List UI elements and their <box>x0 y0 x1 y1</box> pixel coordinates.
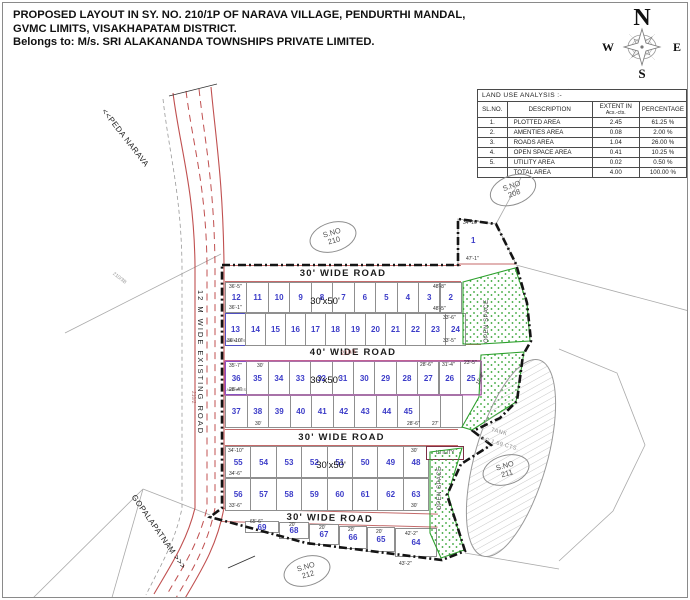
road-band: 30' WIDE ROAD <box>225 429 458 446</box>
road-band: 30' WIDE ROAD <box>225 265 461 282</box>
plot-number: 16 <box>286 314 305 345</box>
plot-16: 16 <box>285 313 306 346</box>
plot-15: 15 <box>265 313 286 346</box>
land-use-cell: AMENTIES AREA <box>507 128 592 138</box>
plot-number: 39 <box>269 396 290 427</box>
plot-42: 42 <box>333 395 356 428</box>
tank-area-label: AC 1.69 CTS. <box>480 436 519 452</box>
plot-number: 14 <box>246 314 265 345</box>
plot-number: 33 <box>290 362 310 394</box>
title-line-3: Belongs to: M/s. SRI ALAKANANDA TOWNSHIP… <box>13 36 465 50</box>
plot-number: 53 <box>277 447 301 477</box>
dimension-label: 20' <box>319 525 326 531</box>
land-use-cell: 0.08 <box>592 128 639 138</box>
compass-rose-icon: N W E S <box>595 5 688 83</box>
land-use-cell: 0.41 <box>592 148 639 158</box>
land-use-cell: 0.50 % <box>639 158 686 168</box>
dimension-label: 42'-2" <box>405 531 418 537</box>
plot-11: 11 <box>246 282 268 313</box>
plot-number: 28 <box>397 362 417 394</box>
plot-59: 59 <box>301 478 327 511</box>
plot-54: 54 <box>250 446 276 478</box>
compass-south-label: S <box>638 66 645 81</box>
dimension-label: 30' <box>411 448 418 454</box>
land-use-row: 1.PLOTTED AREA2.4561.25 % <box>478 118 687 128</box>
gopalapatnam-label: GOPALAPATNAM >>> <box>130 493 188 571</box>
land-use-row: 5.UTILITY AREA0.020.50 % <box>478 158 687 168</box>
dimension-label: 20' <box>348 527 355 533</box>
plot-41: 41 <box>311 395 334 428</box>
plot-number: 29 <box>375 362 395 394</box>
dimension-label: 43'-2" <box>399 561 412 567</box>
plot-10: 10 <box>268 282 290 313</box>
plot-number: 44 <box>377 396 398 427</box>
plot-number: 49 <box>378 447 402 477</box>
plot-58: 58 <box>276 478 302 511</box>
existing-road-label: 12 M WIDE EXISTING ROAD <box>196 290 205 435</box>
plot-44: 44 <box>376 395 399 428</box>
plot-number: 15 <box>266 314 285 345</box>
plot-cell-blank <box>440 395 463 428</box>
plot-number: 61 <box>353 479 377 510</box>
plot-number: 9 <box>290 283 310 312</box>
dimension-label: 36'-1" <box>229 305 242 311</box>
plot-number: 59 <box>302 479 326 510</box>
land-use-row: 4.OPEN SPACE AREA0.4110.25 % <box>478 148 687 158</box>
plot-20: 20 <box>365 313 386 346</box>
title-line-2: GVMC LIMITS, VISAKHAPATAM DISTRICT. <box>13 23 465 37</box>
land-use-row: 2.AMENTIES AREA0.082.00 % <box>478 128 687 138</box>
plot-19: 19 <box>345 313 366 346</box>
dimension-label: 36'-5" <box>229 284 242 290</box>
dimension-label: 23'-5" <box>464 360 477 366</box>
dimension-label: 20' <box>376 529 383 535</box>
plot-29: 29 <box>374 361 396 395</box>
land-use-cell <box>478 168 508 178</box>
plot-number: 6 <box>355 283 375 312</box>
plot-53: 53 <box>276 446 302 478</box>
land-use-cell: 4.00 <box>592 168 639 178</box>
land-use-cell: 26.00 % <box>639 138 686 148</box>
plot-number: 62 <box>378 479 402 510</box>
plot-number: 54 <box>251 447 275 477</box>
land-use-cell: 1.04 <box>592 138 639 148</box>
land-use-cell: ROADS AREA <box>507 138 592 148</box>
compass-west-label: W <box>602 40 614 54</box>
land-use-table-title: LAND USE ANALYSIS :- <box>478 90 687 102</box>
dimension-label: 48'-5" <box>433 306 446 312</box>
col-header-extent: EXTENT IN Acs.-cts. <box>592 102 639 118</box>
dimension-label: 30' <box>255 421 262 427</box>
plot-number: 5 <box>376 283 396 312</box>
dimension-label: 34'-6" <box>229 471 242 477</box>
plot-size-label: 30'x50' <box>310 296 340 307</box>
land-use-cell: 5. <box>478 158 508 168</box>
compass-east-label: E <box>673 40 681 54</box>
land-use-cell: PLOTTED AREA <box>507 118 592 128</box>
land-use-table: LAND USE ANALYSIS :- SL.NO. DESCRIPTION … <box>477 89 687 178</box>
land-use-cell: 2.45 <box>592 118 639 128</box>
plot-size-label: 30'x50' <box>310 375 340 386</box>
plot-number: 21 <box>386 314 405 345</box>
plot-60: 60 <box>327 478 353 511</box>
plot-22: 22 <box>405 313 426 346</box>
plot-number: 50 <box>353 447 377 477</box>
land-use-cell: 2. <box>478 128 508 138</box>
land-use-cell: 61.25 % <box>639 118 686 128</box>
dimension-label: 33'-6" <box>443 315 456 321</box>
plot-number: 60 <box>328 479 352 510</box>
plot-number: 34 <box>269 362 289 394</box>
plot-number: 41 <box>312 396 333 427</box>
col-header-slno: SL.NO. <box>478 102 508 118</box>
plot-49: 49 <box>377 446 403 478</box>
plot-33: 33 <box>289 361 311 395</box>
peda-narava-label: <<PEDA NARAVA <box>100 107 151 169</box>
plot-17: 17 <box>305 313 326 346</box>
plot-number: 20 <box>366 314 385 345</box>
dimension-label: 33'-5" <box>443 338 456 344</box>
dimension-label: 35'-7" <box>229 363 242 369</box>
survey-marker-number: 208 <box>507 188 521 200</box>
dimension-label: 47'-1" <box>466 256 479 262</box>
land-use-cell: 1. <box>478 118 508 128</box>
dimension-label: 30' <box>411 503 418 509</box>
col-header-percentage: PERCENTAGE <box>639 102 686 118</box>
survey-marker-number: 210 <box>327 235 341 246</box>
plot-number: 10 <box>269 283 289 312</box>
plot-9: 9 <box>289 282 311 313</box>
dimension-label: 30' <box>257 363 264 369</box>
plot-6: 6 <box>354 282 376 313</box>
plot-number: 58 <box>277 479 301 510</box>
plot-21: 21 <box>385 313 406 346</box>
compass-north-label: N <box>633 5 651 31</box>
col-header-extent-line1: EXTENT IN <box>595 103 637 110</box>
plot-18: 18 <box>325 313 346 346</box>
plot-57: 57 <box>250 478 276 511</box>
land-use-cell: 10.25 % <box>639 148 686 158</box>
land-use-cell: 2.00 % <box>639 128 686 138</box>
land-use-cell: 100.00 % <box>639 168 686 178</box>
page-title: PROPOSED LAYOUT IN SY. NO. 210/1P OF NAR… <box>13 9 465 50</box>
plot-39: 39 <box>268 395 291 428</box>
utility-label: UTILITY <box>436 450 455 456</box>
dimension-label: 33'-6" <box>229 503 242 509</box>
plot-number: 11 <box>247 283 267 312</box>
plot-14: 14 <box>245 313 266 346</box>
plot-number: 30 <box>354 362 374 394</box>
utility-box: UTILITY <box>426 446 464 460</box>
plot-number: 42 <box>334 396 355 427</box>
open-space-label: OPEN SPACE <box>437 466 443 510</box>
dimension-label: 65'-6" <box>250 519 263 525</box>
survey-marker-number: 212 <box>301 569 315 580</box>
plot-size-label: 30'x50' <box>316 460 346 471</box>
land-use-cell: 4. <box>478 148 508 158</box>
plot-number: 18 <box>326 314 345 345</box>
dimension-label: 31'-4" <box>442 362 455 368</box>
plot-34: 34 <box>268 361 290 395</box>
dimension-label: 28'-4" <box>229 387 242 393</box>
plot-number: 57 <box>251 479 275 510</box>
plot-4: 4 <box>397 282 419 313</box>
survey-marker-212: S.NO212 <box>280 550 334 592</box>
plot-62: 62 <box>377 478 403 511</box>
open-space-label: OPEN SPACE <box>484 299 490 343</box>
plot-61: 61 <box>352 478 378 511</box>
plot-43: 43 <box>354 395 377 428</box>
plot-number: 37 <box>226 396 247 427</box>
sy-210-3b-label: 210/3B <box>111 271 127 285</box>
layout-plan-page: PROPOSED LAYOUT IN SY. NO. 210/1P OF NAR… <box>2 2 688 598</box>
dimension-label: 27' <box>432 421 439 427</box>
dimension-label: 28'-6" <box>420 362 433 368</box>
dimension-label: 34'-10" <box>463 220 479 226</box>
plot-50: 50 <box>352 446 378 478</box>
land-use-cell: 0.02 <box>592 158 639 168</box>
land-use-cell: 3. <box>478 138 508 148</box>
plot-37: 37 <box>225 395 248 428</box>
plot-number: 17 <box>306 314 325 345</box>
plot-number: 43 <box>355 396 376 427</box>
plot-5: 5 <box>375 282 397 313</box>
plot-number: 19 <box>346 314 365 345</box>
plot-30: 30 <box>353 361 375 395</box>
plot-40: 40 <box>290 395 313 428</box>
dimension-label: 28'-6" <box>407 421 420 427</box>
land-use-row: 3.ROADS AREA1.0426.00 % <box>478 138 687 148</box>
title-line-1: PROPOSED LAYOUT IN SY. NO. 210/1P OF NAR… <box>13 9 465 23</box>
survey-marker-210: S.NO210 <box>306 216 360 258</box>
col-header-description: DESCRIPTION <box>507 102 592 118</box>
dimension-label: 34'-10" <box>228 448 244 454</box>
dimension-label: 36'-10" <box>227 338 243 344</box>
plot-1-number: 1 <box>471 236 475 245</box>
dimension-label: 48'-8" <box>433 284 446 290</box>
sy-210-2-label: 210/2 <box>190 391 196 404</box>
col-header-extent-line2: Acs.-cts. <box>595 110 637 116</box>
survey-marker-211: S.NO211 <box>479 449 533 491</box>
survey-marker-number: 211 <box>500 468 514 479</box>
plot-number: 4 <box>398 283 418 312</box>
land-use-cell: OPEN SPACE AREA <box>507 148 592 158</box>
plot-28: 28 <box>396 361 418 395</box>
plot-number: 40 <box>291 396 312 427</box>
dimension-label: 20' <box>289 522 296 528</box>
tank-label: TANK <box>490 427 508 437</box>
plot-number: 22 <box>406 314 425 345</box>
land-use-cell: UTILITY AREA <box>507 158 592 168</box>
